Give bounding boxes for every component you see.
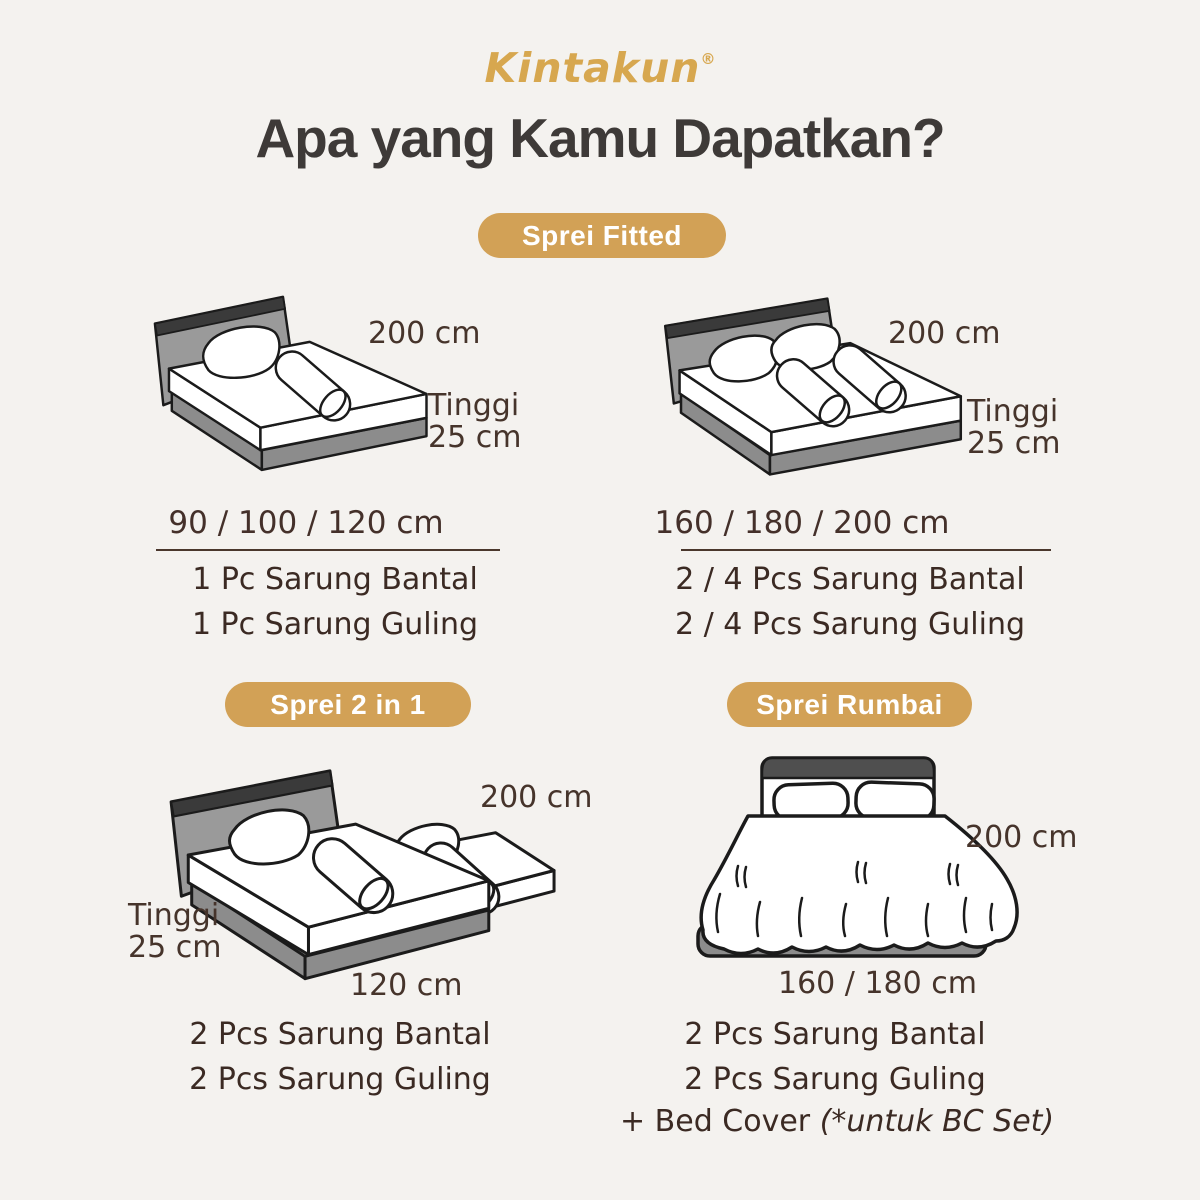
brand-logo: Kintakun® (0, 44, 1200, 92)
badge-sprei-2in1-label: Sprei 2 in 1 (270, 689, 425, 721)
badge-sprei-fitted: Sprei Fitted (478, 213, 726, 258)
badge-sprei-rumbai-label: Sprei Rumbai (756, 689, 942, 721)
headboard-top-edge (762, 758, 934, 778)
height-label: Tinggi 25 cm (428, 390, 521, 454)
height-label-line1: Tinggi (428, 390, 521, 422)
width-label: 200 cm (480, 782, 593, 814)
badge-sprei-2in1: Sprei 2 in 1 (225, 682, 471, 727)
contents-item: 2 Pcs Sarung Bantal (100, 1018, 580, 1052)
page-title: Apa yang Kamu Dapatkan? (0, 106, 1200, 170)
size-options-fitted-double: 160 / 180 / 200 cm (592, 505, 1012, 541)
height-label: Tinggi 25 cm (128, 900, 212, 964)
height-label-line2: 25 cm (967, 428, 1060, 460)
contents-item: 2 / 4 Pcs Sarung Bantal (640, 563, 1060, 597)
two-in-one-figure: 200 cm Tinggi 25 cm 120 cm (100, 742, 620, 1004)
height-label-line1: Tinggi (128, 900, 212, 932)
fitted-double-figure: 200 cm Tinggi 25 cm (640, 282, 1160, 502)
contents-item: 1 Pc Sarung Bantal (115, 563, 555, 597)
brand-logo-text: Kintakun (485, 44, 701, 92)
bonus-item-note: (*untuk BC Set) (820, 1104, 1054, 1139)
width-label: 200 cm (888, 318, 1001, 350)
bottom-width-label: 160 / 180 cm (778, 968, 977, 1000)
badge-sprei-fitted-label: Sprei Fitted (522, 220, 682, 252)
width-label: 200 cm (965, 822, 1078, 854)
bonus-item-text: + Bed Cover (620, 1104, 820, 1139)
height-label: Tinggi 25 cm (967, 396, 1060, 460)
size-options-fitted-single: 90 / 100 / 120 cm (96, 505, 516, 541)
contents-item: 1 Pc Sarung Guling (115, 608, 555, 642)
contents-item: 2 / 4 Pcs Sarung Guling (640, 608, 1060, 642)
rumbai-figure: 200 cm 160 / 180 cm (640, 742, 1160, 1004)
height-label-line1: Tinggi (967, 396, 1060, 428)
fitted-single-figure: 200 cm Tinggi 25 cm (115, 282, 635, 502)
registered-trademark-symbol: ® (700, 50, 715, 68)
contents-item: 2 Pcs Sarung Guling (100, 1063, 580, 1097)
divider-line (681, 549, 1051, 551)
height-label-line2: 25 cm (428, 422, 521, 454)
contents-item: 2 Pcs Sarung Bantal (620, 1018, 1050, 1052)
height-label-line2: 25 cm (128, 932, 212, 964)
infographic-page: Kintakun® Apa yang Kamu Dapatkan? Sprei … (0, 0, 1200, 1200)
contents-item: 2 Pcs Sarung Guling (620, 1063, 1050, 1097)
bottom-width-label: 120 cm (350, 970, 463, 1002)
divider-line (156, 549, 500, 551)
width-label: 200 cm (368, 318, 481, 350)
badge-sprei-rumbai: Sprei Rumbai (727, 682, 972, 727)
contents-item-bonus: + Bed Cover (*untuk BC Set) (620, 1105, 1050, 1139)
